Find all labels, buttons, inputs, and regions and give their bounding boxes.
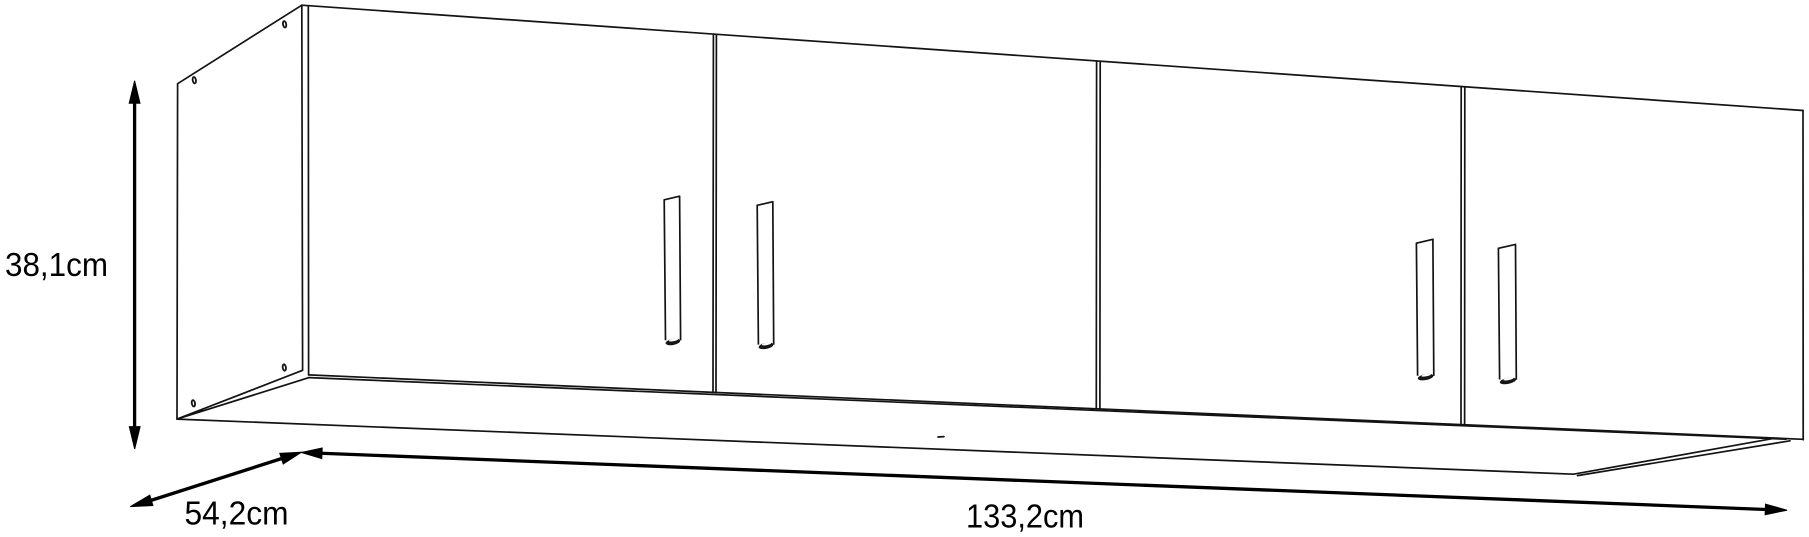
svg-text:54,2cm: 54,2cm	[185, 495, 289, 532]
svg-text:38,1cm: 38,1cm	[5, 246, 108, 283]
svg-text:133,2cm: 133,2cm	[966, 498, 1084, 535]
